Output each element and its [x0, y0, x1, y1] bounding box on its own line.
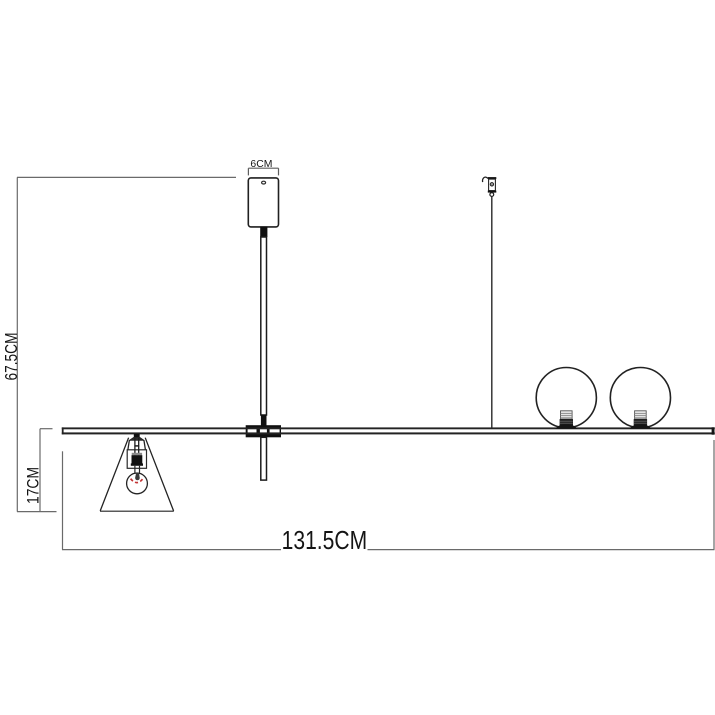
svg-text:131.5CM: 131.5CM [282, 527, 368, 555]
svg-text:6CM: 6CM [250, 159, 272, 170]
svg-text:67.5CM: 67.5CM [1, 333, 21, 381]
svg-text:17CM: 17CM [25, 467, 43, 504]
